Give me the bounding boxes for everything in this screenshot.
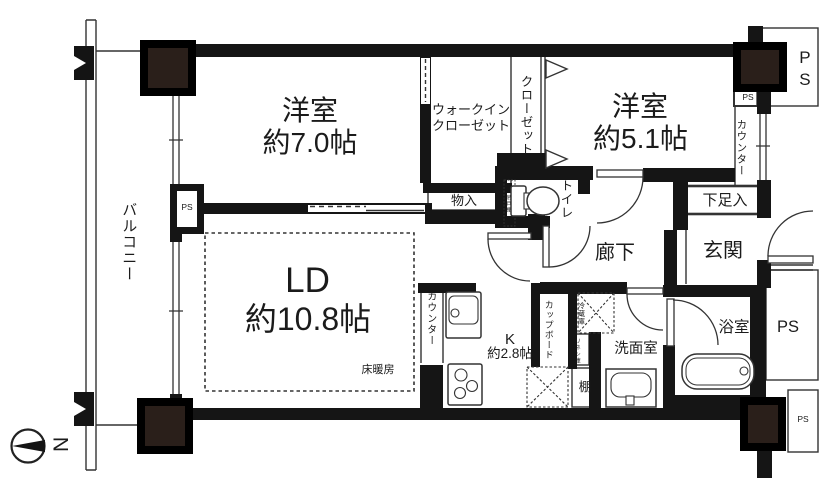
wall-top [196, 44, 737, 57]
north-arrow [12, 430, 46, 463]
ld-door-arc [488, 239, 530, 281]
wic-label-line1: ウォークイン [430, 103, 512, 117]
washroom-door-arc [627, 294, 663, 330]
wall-hall-entrance-lower [664, 230, 677, 288]
balcony-label: バルコニー [120, 192, 136, 292]
room-kitchen-size: 約2.8帖 [477, 347, 543, 362]
ps-top-small-label: PS [736, 93, 760, 102]
bath-door-leaf [667, 299, 674, 346]
wall-bottom [188, 408, 745, 420]
wall-bath-right [750, 288, 766, 400]
bathroom-label: 浴室 [712, 320, 756, 337]
ps-top-large-label: PS [795, 48, 813, 92]
wall-stub-top-right [748, 26, 763, 44]
toilet-fixture [511, 186, 559, 216]
wic-label-line2: クローゼット [430, 119, 512, 133]
monoire-label: 物入 [446, 194, 482, 208]
wall-bath-top [663, 285, 763, 297]
cupboard-label: カップボード [543, 296, 553, 364]
refrigerator-label: 冷蔵庫 [577, 296, 585, 332]
wall-hall-bottom [540, 282, 627, 294]
pillar-top-right [737, 46, 783, 88]
linen-label: リネン庫 [573, 337, 579, 364]
ps-bath-label: PS [775, 319, 801, 337]
toilet-door-leaf [543, 226, 549, 267]
kitchen-sink [446, 292, 481, 338]
entrance-door-leaf [768, 256, 813, 263]
ps-bottom-small-label: PS [792, 415, 814, 424]
wall-bath-bottom [663, 395, 750, 413]
closet-triangle-top [546, 60, 567, 78]
wall-counter-stub [420, 365, 443, 411]
window-west7 [169, 95, 183, 186]
window-counter [756, 110, 770, 181]
floorplan: 洋室 約7.0帖 洋室 約5.1帖 ウォークイン クローゼット クローゼット バ… [0, 0, 829, 494]
hallway-label: 廊下 [589, 243, 641, 265]
shelf-label: 棚 [572, 381, 598, 395]
pillar-bottom-left [141, 402, 189, 450]
window-ld [169, 240, 183, 396]
wall-toilet-right [578, 166, 590, 194]
west51-door-arc [597, 177, 643, 223]
room-west7-name: 洋室 [240, 96, 380, 126]
floor-heating-label: 床暖房 [352, 365, 404, 377]
north-label: N [48, 433, 71, 455]
getabako-label: 下足入 [697, 193, 753, 209]
hanging-cabinet-label: 吊戸棚 [505, 184, 510, 224]
room-ld-size: 約10.8帖 [213, 302, 403, 337]
entrance-label: 玄関 [700, 241, 746, 263]
ps-balcony-label: PS [176, 203, 198, 212]
room-ld-name: LD [240, 262, 375, 300]
toilet-label: トイレ [558, 177, 572, 221]
cupboard-space [527, 367, 568, 407]
wall-right-b [757, 180, 771, 218]
wall-stub-bottom-right [757, 450, 772, 478]
room-west51-size: 約5.1帖 [563, 124, 718, 154]
washroom-door-leaf [627, 288, 663, 294]
washroom-label: 洗面室 [607, 342, 665, 358]
counter-entrance-label: カウンター [735, 116, 746, 180]
washbasin [606, 369, 656, 407]
room-west7-size: 約7.0帖 [225, 128, 395, 158]
ld-door-leaf [488, 233, 531, 239]
closet-label: クローゼット [518, 74, 532, 156]
pillar-top-left [144, 44, 192, 92]
room-west51-name: 洋室 [570, 92, 710, 122]
wall-monoire-bottom [425, 210, 505, 224]
wall-right-c [757, 260, 771, 288]
wall-washroom-left [589, 332, 601, 417]
west51-door-leaf [597, 170, 643, 177]
stove [448, 364, 482, 405]
toilet-door-arc [549, 226, 590, 267]
pillar-bottom-right [744, 401, 782, 447]
wall-west51-bottom [643, 168, 735, 182]
bathtub [682, 354, 754, 389]
entrance-door-arc [768, 211, 813, 256]
entrance-porch-lines [768, 265, 813, 270]
counter-kitchen-label: カウンター [424, 289, 435, 347]
wall-hall-entrance-upper [673, 178, 688, 230]
